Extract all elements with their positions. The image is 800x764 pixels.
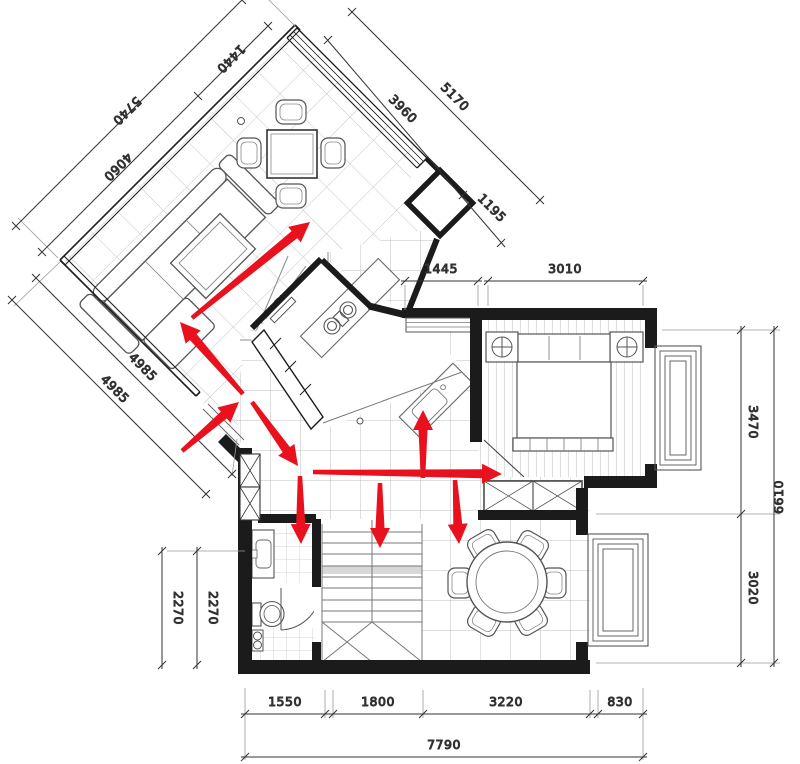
chair — [276, 184, 306, 208]
wardrobe — [484, 481, 582, 511]
dim-label: 1445 — [424, 261, 458, 276]
dim-label: 7790 — [427, 737, 461, 752]
nook-cabinet — [406, 318, 474, 332]
bed — [517, 362, 611, 438]
dim-label: 3220 — [489, 694, 523, 709]
floor-plan-svg: TV — [0, 0, 800, 764]
dim-label: 2270 — [206, 591, 221, 625]
dim-label: 1550 — [268, 694, 302, 709]
dim-label: 1800 — [361, 694, 395, 709]
vanity-sink — [252, 530, 274, 578]
chair — [321, 138, 345, 168]
floor-plan-page: TV — [0, 0, 800, 764]
left-window-boxes — [240, 454, 260, 520]
chair — [276, 100, 306, 124]
dim-label: 3470 — [746, 405, 761, 439]
utility-taps — [252, 630, 263, 651]
dim-label: 3010 — [548, 261, 582, 276]
dim-label: 2270 — [171, 591, 186, 625]
dining-table — [467, 542, 547, 622]
toilet — [252, 602, 284, 627]
dim-label: 830 — [607, 694, 632, 709]
chair — [237, 138, 261, 168]
door-stop — [357, 418, 363, 424]
dim-label: 6610 — [771, 480, 786, 514]
staircase — [314, 519, 422, 662]
square-table — [267, 130, 317, 178]
dim-label: 3020 — [746, 571, 761, 605]
wall-fixture — [238, 118, 245, 125]
bed-headboard — [518, 334, 610, 362]
